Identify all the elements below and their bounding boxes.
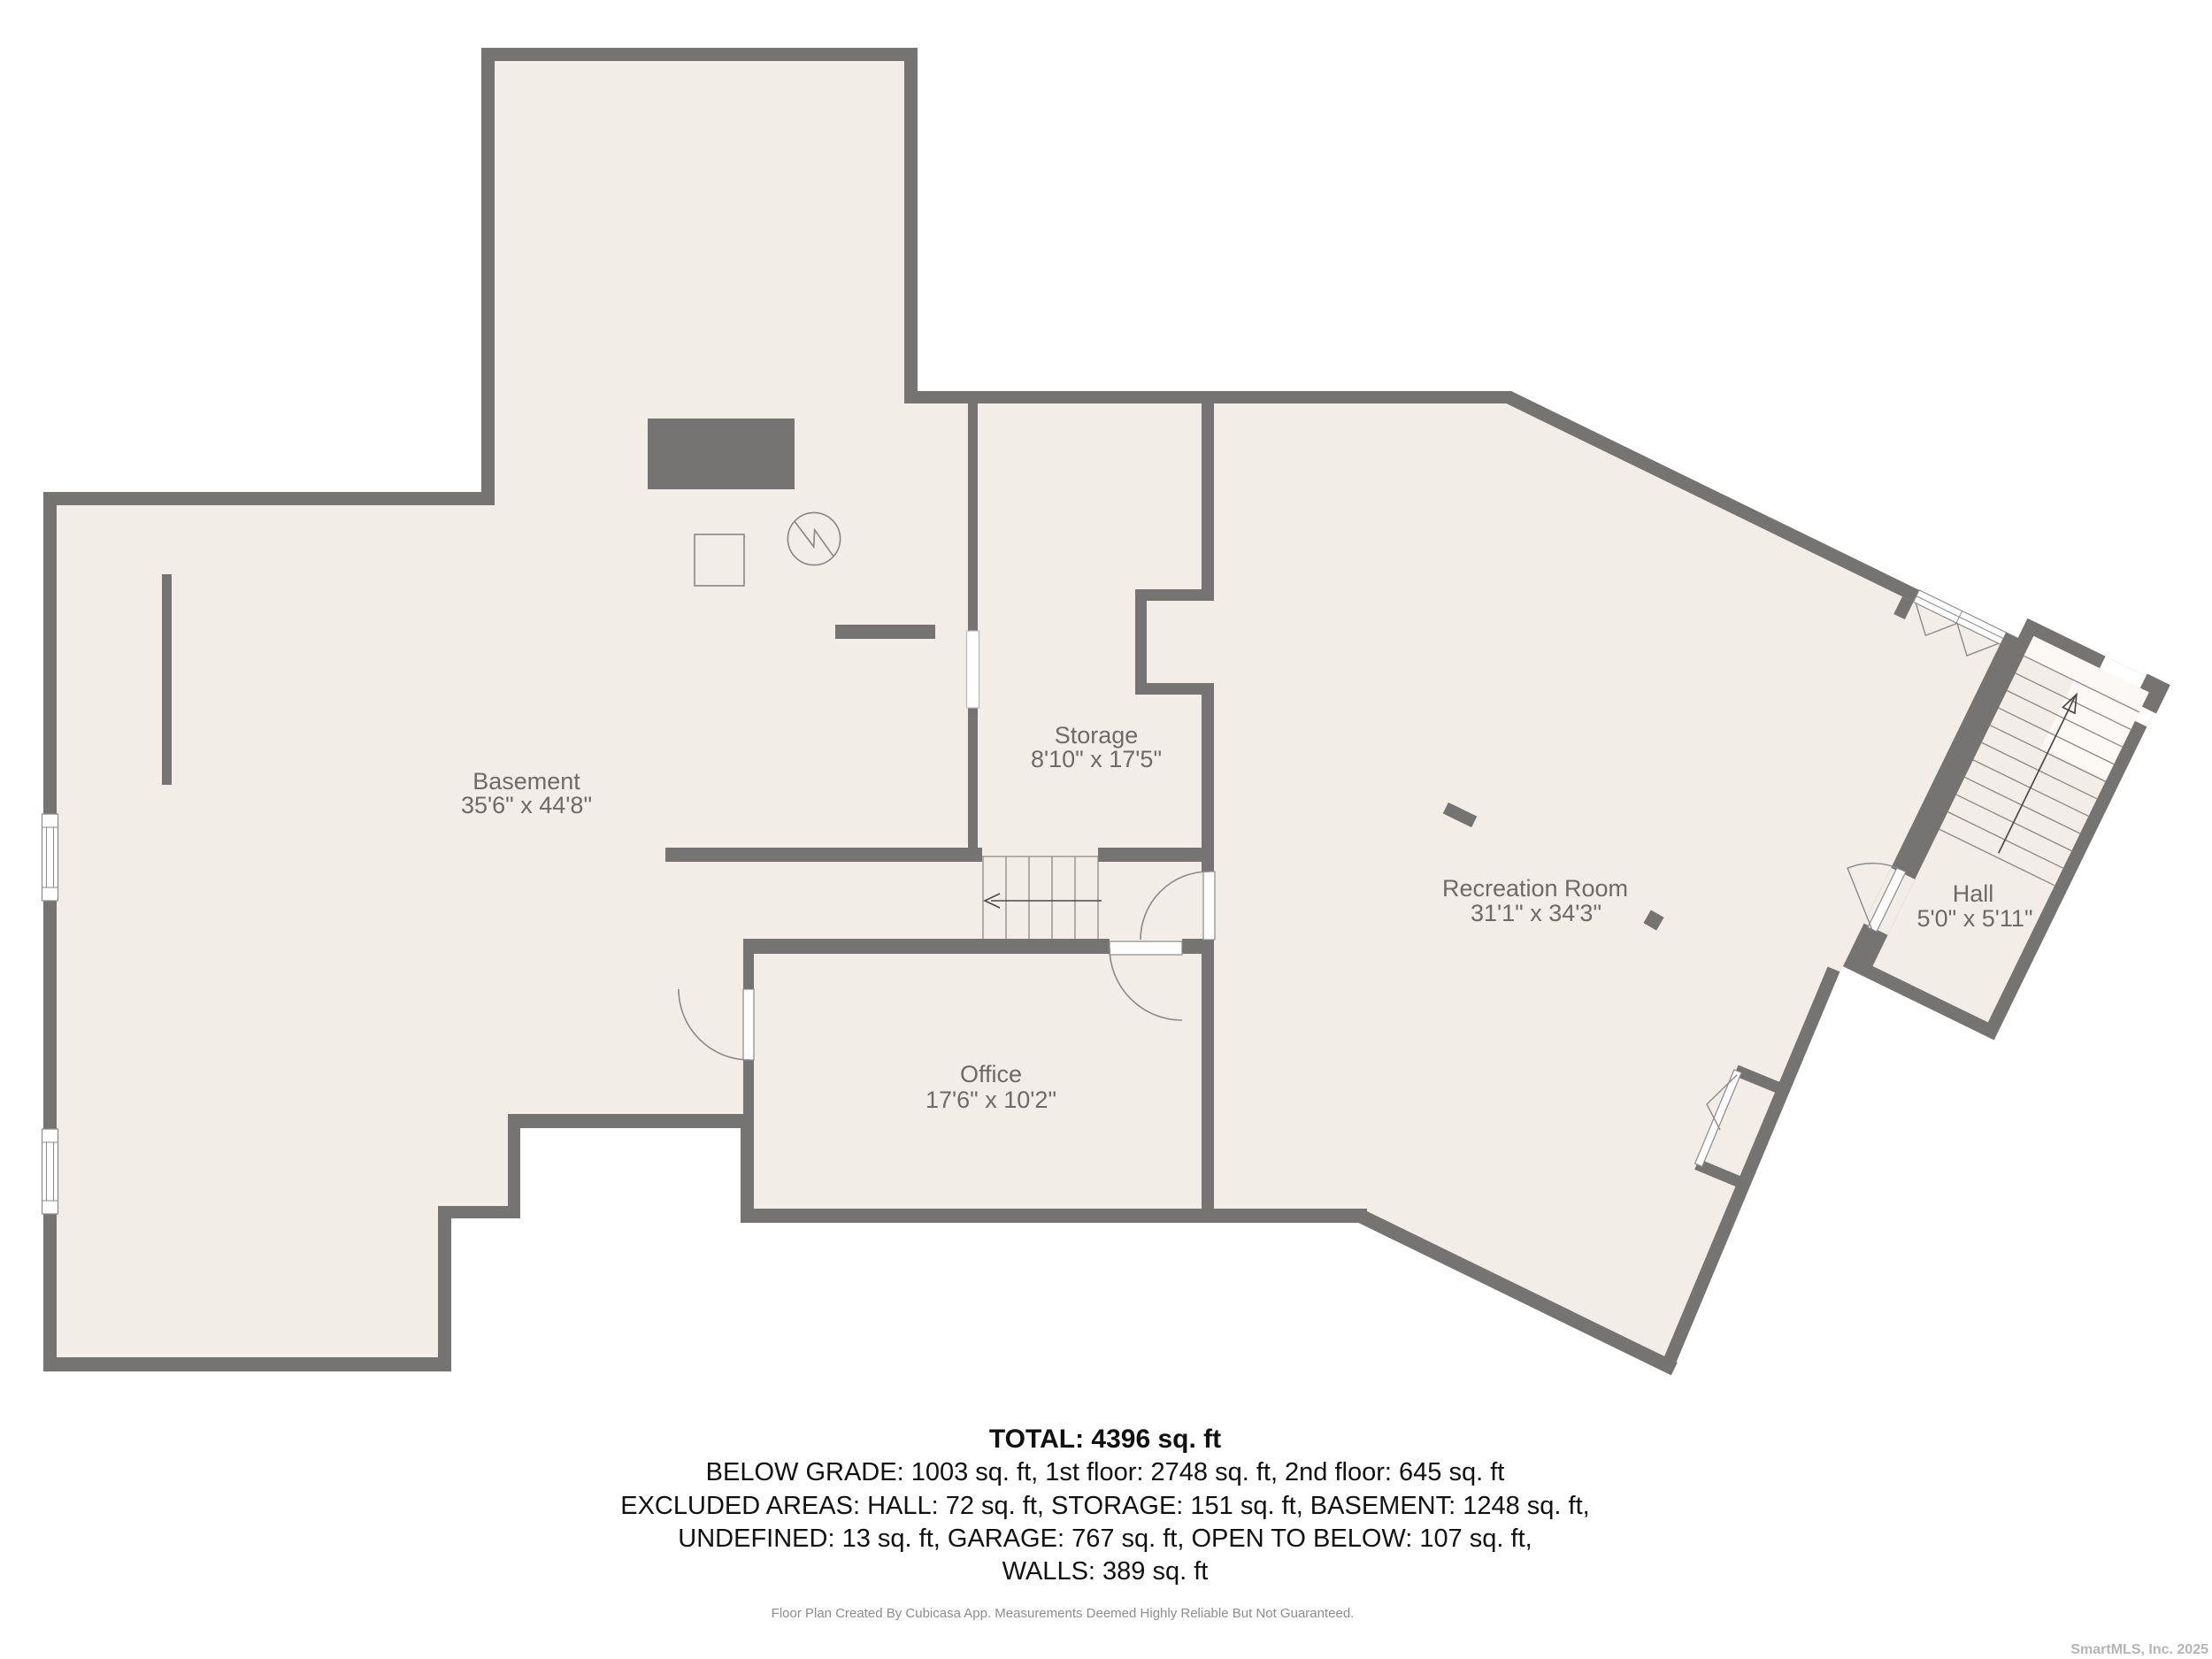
svg-text:BELOW GRADE: 1003 sq. ft, 1st: BELOW GRADE: 1003 sq. ft, 1st floor: 274… [706, 1458, 1505, 1486]
svg-text:31'1" x 34'3": 31'1" x 34'3" [1471, 900, 1601, 926]
svg-text:Recreation Room: Recreation Room [1442, 875, 1628, 902]
svg-text:WALLS: 389 sq. ft: WALLS: 389 sq. ft [1002, 1557, 1209, 1586]
svg-text:35'6" x 44'8": 35'6" x 44'8" [461, 792, 592, 818]
svg-text:Floor Plan Created By Cubicasa: Floor Plan Created By Cubicasa App. Meas… [772, 1606, 1355, 1621]
svg-text:Storage: Storage [1055, 722, 1139, 749]
svg-text:TOTAL: 4396 sq. ft: TOTAL: 4396 sq. ft [989, 1425, 1221, 1454]
svg-text:5'0" x 5'11": 5'0" x 5'11" [1916, 905, 2032, 932]
svg-text:UNDEFINED: 13 sq. ft, GARAGE:: UNDEFINED: 13 sq. ft, GARAGE: 767 sq. ft… [678, 1525, 1532, 1553]
svg-text:Basement: Basement [472, 768, 580, 795]
svg-text:Hall: Hall [1953, 880, 1994, 907]
svg-text:17'6" x 10'2": 17'6" x 10'2" [926, 1087, 1056, 1113]
svg-text:SmartMLS, Inc. 2025: SmartMLS, Inc. 2025 [2070, 1642, 2208, 1657]
svg-text:EXCLUDED AREAS: HALL: 72 sq. f: EXCLUDED AREAS: HALL: 72 sq. ft, STORAGE… [620, 1492, 1589, 1520]
svg-text:Office: Office [960, 1061, 1022, 1087]
svg-text:8'10" x 17'5": 8'10" x 17'5" [1031, 746, 1162, 772]
